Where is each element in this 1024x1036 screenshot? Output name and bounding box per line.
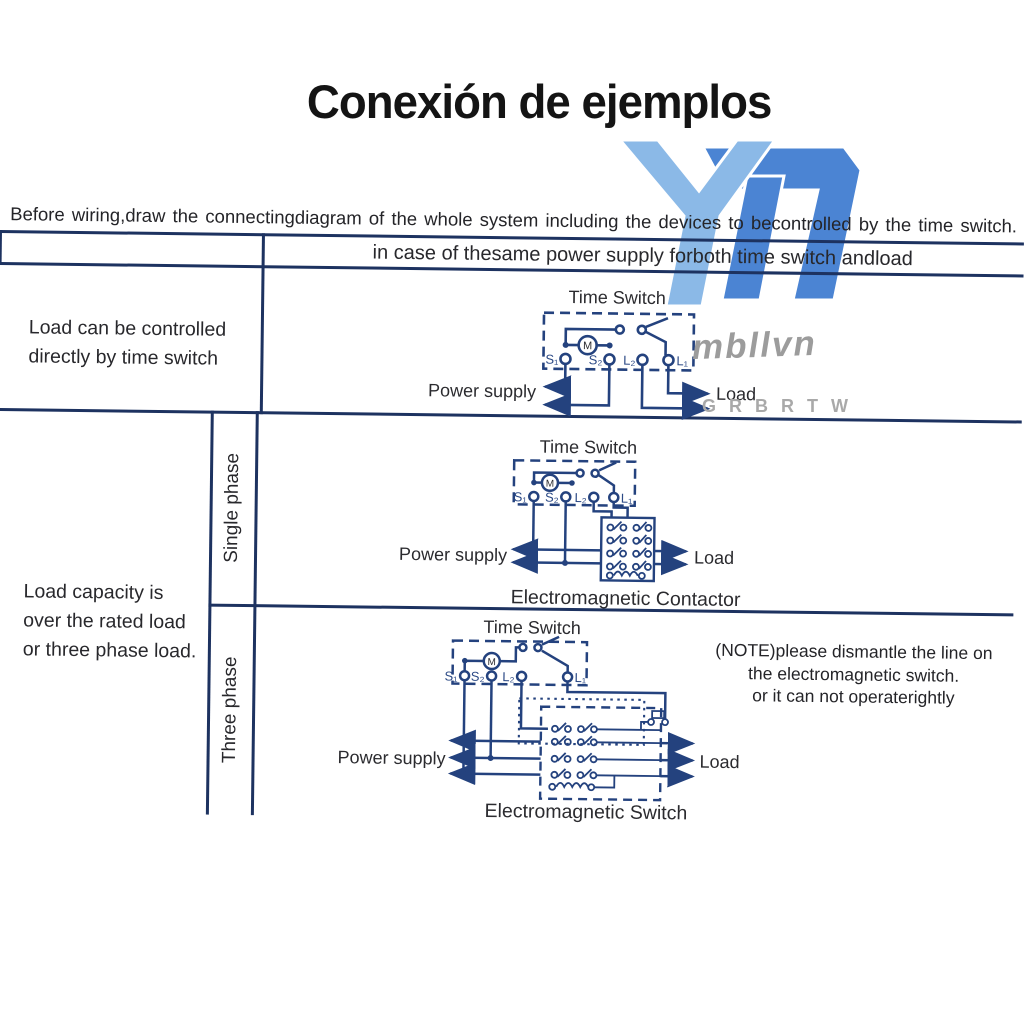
terminal-l1 — [563, 672, 572, 681]
contact-left — [616, 326, 624, 334]
terminal-s2 — [561, 492, 570, 501]
diagram3-caption: Electromagnetic Switch — [484, 800, 687, 824]
l2-label: L₂ — [623, 353, 635, 368]
diagram3-title: Time Switch — [483, 617, 581, 638]
s2-label: S₂ — [545, 490, 559, 505]
power-wire-1 — [513, 549, 601, 550]
aux-contact — [641, 711, 668, 730]
row2-label-line3: or three phase load. — [23, 635, 197, 666]
diagram2-power-label: Power supply — [399, 544, 507, 565]
power-wire-1 — [451, 741, 541, 742]
s1-label: S₁ — [514, 489, 528, 504]
terminal-l2 — [589, 493, 598, 502]
l1-label: L₁ — [676, 353, 688, 368]
terminal-l2 — [517, 672, 526, 681]
diagram2-caption: Electromagnetic Contactor — [511, 586, 742, 611]
terminal-s1 — [529, 492, 538, 501]
diagram3-load-label: Load — [699, 752, 739, 772]
diagram2-load-label: Load — [694, 548, 734, 568]
watermark-name: mbllvn — [691, 324, 817, 368]
three-phase-cell: Three phase — [206, 604, 255, 816]
row2-label-line1: Load capacity is — [23, 577, 197, 608]
note-block: (NOTE)please dismantle the line on the e… — [694, 639, 1013, 710]
l2-label: L₂ — [502, 669, 514, 684]
motor-label: M — [488, 657, 496, 668]
power-wire-2 — [451, 758, 541, 759]
terminal-s1 — [460, 671, 469, 680]
terminal-s2 — [604, 354, 614, 364]
watermark-letters: G R B R T W — [702, 396, 852, 417]
diagram3-power-label: Power supply — [337, 747, 445, 768]
terminal-l1 — [609, 493, 618, 502]
switch-dotted-box — [519, 698, 645, 745]
power-wire-1 — [545, 364, 565, 387]
s2-label: S₂ — [589, 352, 603, 367]
s1-label: S₁ — [444, 668, 458, 683]
s2-label: S₂ — [471, 669, 485, 684]
diagram1-title: Time Switch — [568, 287, 666, 308]
s1-label: S₁ — [545, 352, 559, 367]
l2-label: L₂ — [574, 490, 586, 505]
row2-label-line2: over the rated load — [23, 606, 197, 637]
note-line1: (NOTE)please dismantle the line on — [695, 639, 1013, 665]
row1-label: Load can be controlled directly by time … — [28, 313, 226, 373]
diagram1-power-label: Power supply — [428, 380, 536, 401]
diagram-single-phase: Time Switch M S₁ S₂ L₂ L₁ Power supply L… — [373, 433, 780, 616]
terminal-l1 — [663, 355, 673, 365]
contactor-contacts — [607, 521, 652, 579]
diagram-three-phase: Time Switch M S₁ S₂ L₂ L₁ Power supply L… — [318, 614, 751, 829]
terminal-l2 — [637, 355, 647, 365]
motor-label: M — [546, 479, 554, 490]
diagram2-title: Time Switch — [540, 437, 638, 458]
manual-sheet: Before wiring,draw the connectingdiagram… — [0, 0, 1024, 1036]
row1-label-line2: directly by time switch — [28, 342, 226, 373]
switch-dashed-box — [540, 707, 661, 800]
l1-label: L₁ — [574, 670, 586, 685]
switch-contacts — [549, 710, 668, 791]
row2-label: Load capacity is over the rated load or … — [23, 577, 198, 666]
l1-label: L₁ — [621, 491, 633, 506]
contact-right — [638, 326, 646, 334]
terminal-s1 — [560, 354, 570, 364]
table-line-left-tick — [0, 230, 2, 265]
single-phase-label: Single phase — [221, 452, 244, 562]
single-phase-cell: Single phase — [208, 411, 256, 605]
three-phase-label: Three phase — [219, 656, 242, 763]
note-line3: or it can not operaterightly — [694, 684, 1012, 710]
motor-label: M — [583, 340, 592, 352]
contactor-coil — [607, 571, 645, 578]
row1-label-line1: Load can be controlled — [29, 313, 227, 344]
terminal-s2 — [487, 671, 496, 680]
power-wire-2 — [513, 562, 601, 563]
